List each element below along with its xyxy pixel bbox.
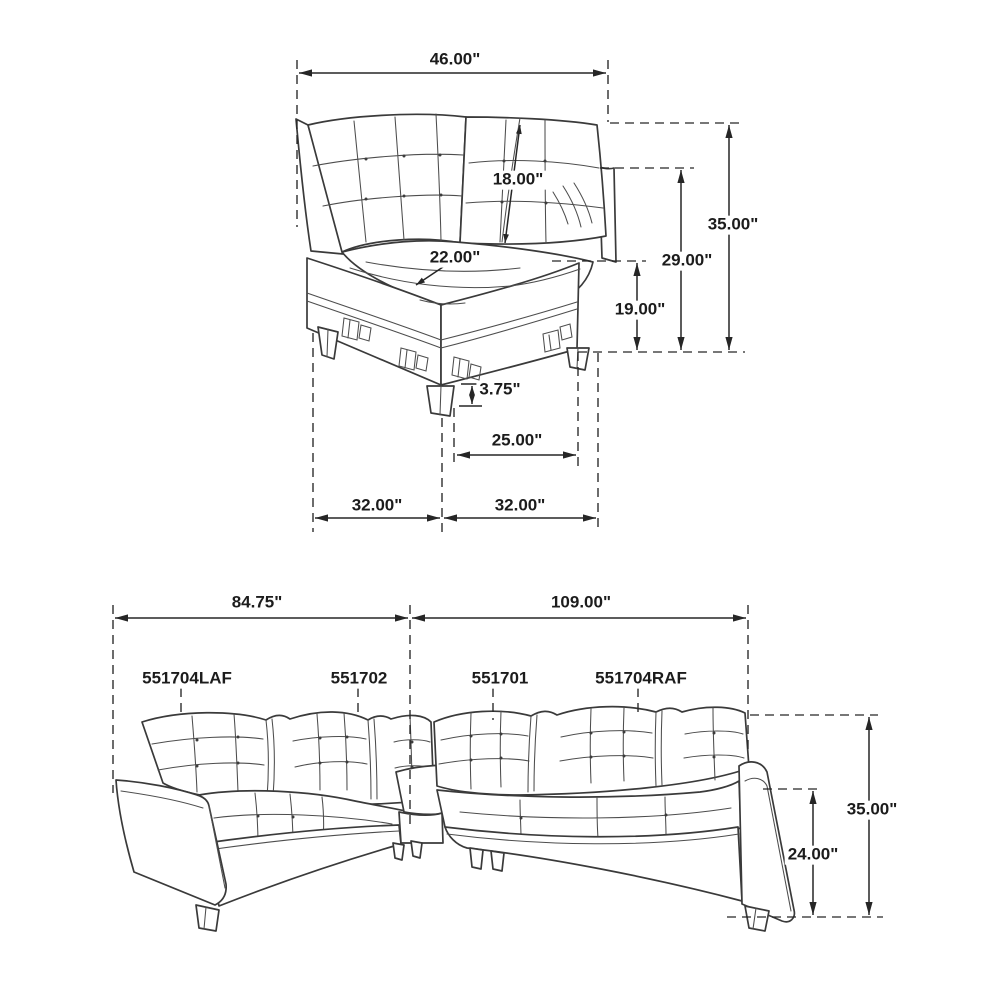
sectional-right-arm-leg — [745, 906, 769, 931]
part-label-551701: 551701 — [469, 670, 532, 689]
sectional-leg-edges — [204, 907, 756, 929]
sectional-corner-skirt — [399, 812, 443, 843]
sectional-mid-legs — [470, 848, 504, 871]
dim-label-front-span: 25.00" — [489, 432, 546, 451]
part-label-551702: 551702 — [328, 670, 391, 689]
dim-label-left-length: 84.75" — [229, 594, 286, 613]
dim-label-arm-height: 24.00" — [785, 846, 842, 865]
dim-label-right-length: 109.00" — [548, 594, 614, 613]
dim-label-right-depth: 32.00" — [492, 497, 549, 516]
furniture-dimension-diagram: 46.00" 18.00" 22.00" 35.00" 29.00" 19.00… — [0, 0, 1000, 1000]
sectional-left-arm-leg — [196, 905, 219, 931]
dim-label-left-depth: 32.00" — [349, 497, 406, 516]
dim-label-sectional-height: 35.00" — [844, 801, 901, 820]
dim-label-base-height: 19.00" — [612, 301, 669, 320]
dim-label-seat: 22.00" — [427, 249, 484, 268]
part-label-laf: 551704LAF — [139, 670, 235, 689]
sectional-right-skirt — [445, 827, 742, 901]
dim-label-back-height: 29.00" — [659, 252, 716, 271]
sectional-drawing — [116, 707, 794, 931]
dim-label-total-height: 35.00" — [705, 216, 762, 235]
sectional-right-back — [434, 707, 749, 795]
dim-label-leg-height: 3.75" — [476, 381, 523, 400]
dim-label-back-cushion: 18.00" — [490, 171, 547, 190]
dim-label-width: 46.00" — [427, 51, 484, 70]
part-label-raf: 551704RAF — [592, 670, 690, 689]
